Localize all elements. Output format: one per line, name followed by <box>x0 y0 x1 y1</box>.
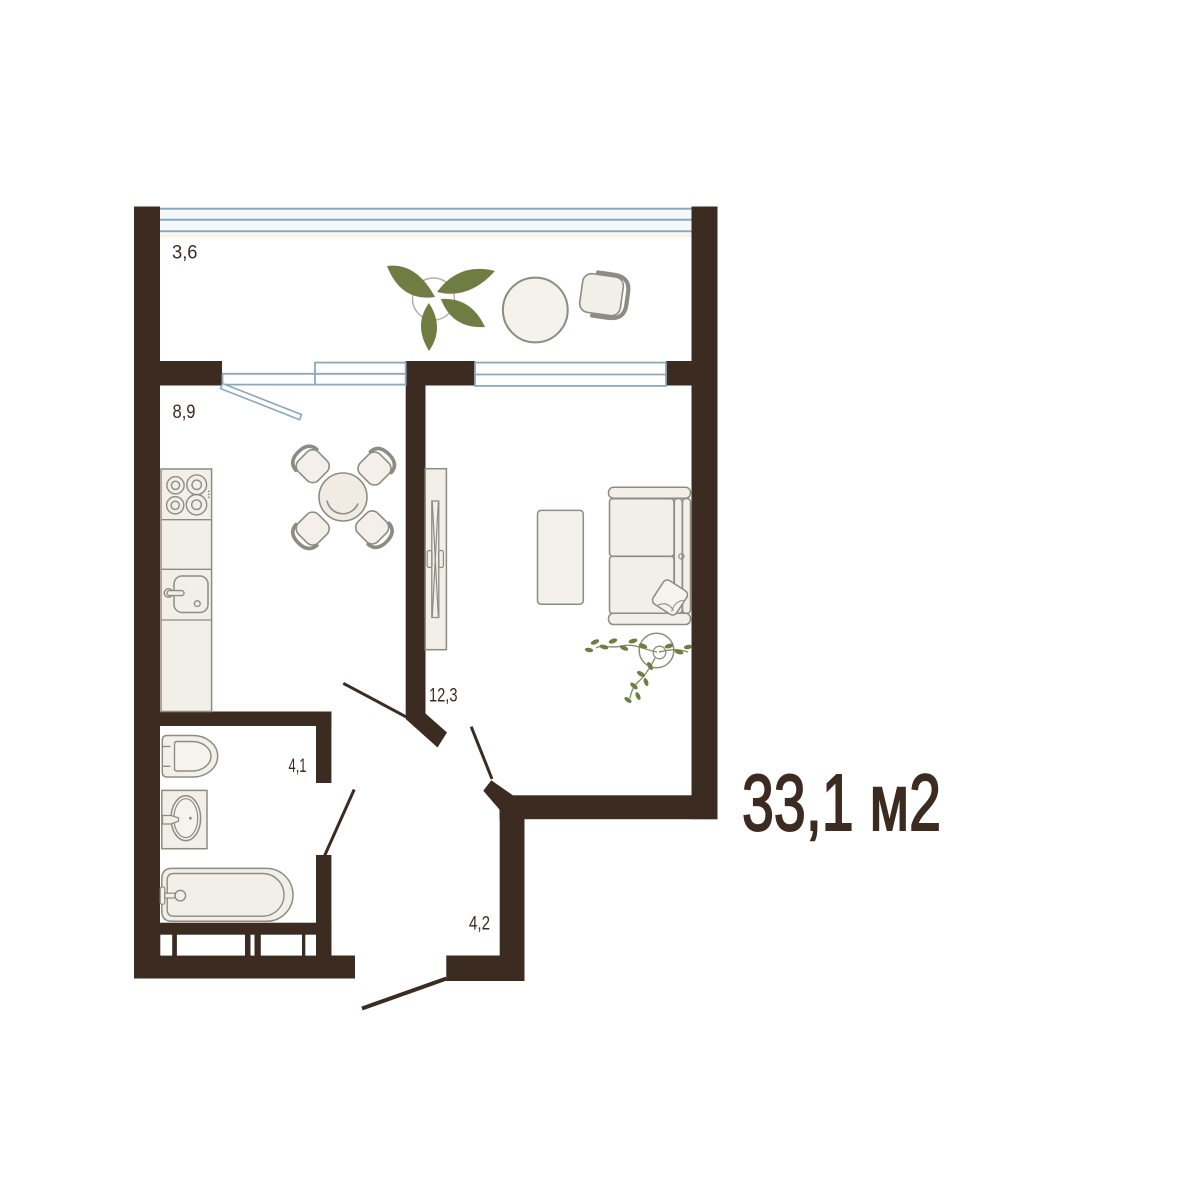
svg-text:33,1 м2: 33,1 м2 <box>742 758 941 847</box>
svg-text:4,2: 4,2 <box>469 914 490 935</box>
svg-text:8,9: 8,9 <box>173 402 196 423</box>
svg-text:3,6: 3,6 <box>172 243 198 264</box>
svg-text:12,3: 12,3 <box>429 686 458 707</box>
svg-text:4,1: 4,1 <box>289 756 307 777</box>
